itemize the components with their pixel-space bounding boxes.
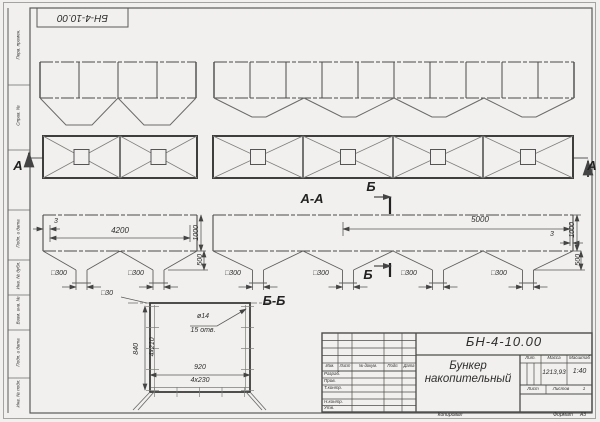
section-b-marks — [374, 197, 391, 277]
section-mark-b-bottom: Б — [361, 268, 375, 282]
title-block-doc-number: БН-4-10.00 — [416, 335, 592, 349]
mass-label: Масса — [541, 356, 567, 361]
margin-label-inv-podl: Инв. № подл. — [17, 358, 22, 422]
dim-outlet-2: □300 — [123, 270, 149, 278]
scale-label: Масштаб — [567, 356, 592, 361]
section-mark-a-right: А — [585, 159, 599, 173]
dim-tube-size: □30 — [95, 290, 119, 298]
format-label: Формат — [550, 413, 576, 419]
dim-hole-diameter: ø14 — [190, 313, 216, 321]
margin-label-sprav-no: Справ. № — [17, 80, 22, 150]
row-label-tkontr: Т.контр. — [324, 386, 351, 391]
copied-label: Копировал — [420, 413, 480, 419]
dim-length-left: 4200 — [100, 227, 140, 236]
drawing-linework — [0, 0, 600, 422]
drawing-sheet: БН-4-10.00 Перв. примен. Справ. № Подп. … — [0, 0, 600, 422]
header-col-podp: Подп. — [384, 364, 402, 369]
row-label-prov: Пров. — [324, 379, 351, 384]
dim-outlet-3: □300 — [220, 270, 246, 278]
format-value: А3 — [576, 413, 590, 419]
row-label-razrab: Разраб. — [324, 372, 351, 377]
section-a-marks — [29, 153, 588, 177]
section-mark-a-left: А — [9, 159, 27, 173]
dim-height-left: 1000 — [193, 220, 201, 246]
dim-flange-height: 840 — [133, 336, 141, 362]
scale-value: 1:40 — [567, 368, 592, 376]
dim-flange-width: 920 — [187, 364, 213, 372]
lit-label: Лит. — [520, 356, 541, 361]
mass-value: 1213,93 — [541, 369, 567, 376]
dim-hole-spacing-v: 4x210 — [149, 332, 157, 362]
sheets-label: Листов — [546, 387, 576, 392]
title-block-name-line2: накопительный — [416, 373, 520, 386]
sheets-value: 1 — [578, 387, 590, 392]
dim-length-right: 5000 — [460, 216, 500, 225]
header-col-dokum: № докум. — [352, 364, 384, 369]
row-label-utv: Утв. — [324, 406, 351, 411]
header-col-izm: Изм. — [322, 364, 338, 369]
section-title-bb: Б-Б — [254, 294, 294, 308]
dim-hole-spacing-h: 4x230 — [185, 377, 215, 385]
title-block-name-line1: Бункер — [416, 360, 520, 373]
dim-height-right: 1000 — [569, 217, 577, 243]
section-mark-b-top: Б — [364, 180, 378, 194]
front-view-right — [214, 62, 574, 117]
dim-hopper-right: 500 — [575, 247, 583, 273]
section-title-aa: А-А — [292, 192, 332, 206]
margin-label-perv-primen: Перв. примен. — [17, 9, 22, 79]
plan-view-right — [213, 136, 573, 178]
doc-number-top: БН-4-10.00 — [37, 8, 128, 26]
dim-hopper-left: 500 — [197, 247, 205, 273]
plan-view-left — [43, 136, 197, 178]
dim-hole-count: 15 отв. — [187, 327, 219, 335]
front-view-left — [40, 62, 196, 125]
dim-wall-left: 3 — [50, 218, 62, 226]
dim-outlet-5: □300 — [396, 270, 422, 278]
sheet-label: Лист — [520, 387, 546, 392]
dim-outlet-1: □300 — [46, 270, 72, 278]
frame — [8, 8, 592, 413]
header-col-data: Дата — [402, 364, 416, 369]
dim-outlet-6: □300 — [486, 270, 512, 278]
dim-outlet-4: □300 — [308, 270, 334, 278]
dim-wall-right: 3 — [546, 231, 558, 239]
header-col-list: Лист — [338, 364, 352, 369]
